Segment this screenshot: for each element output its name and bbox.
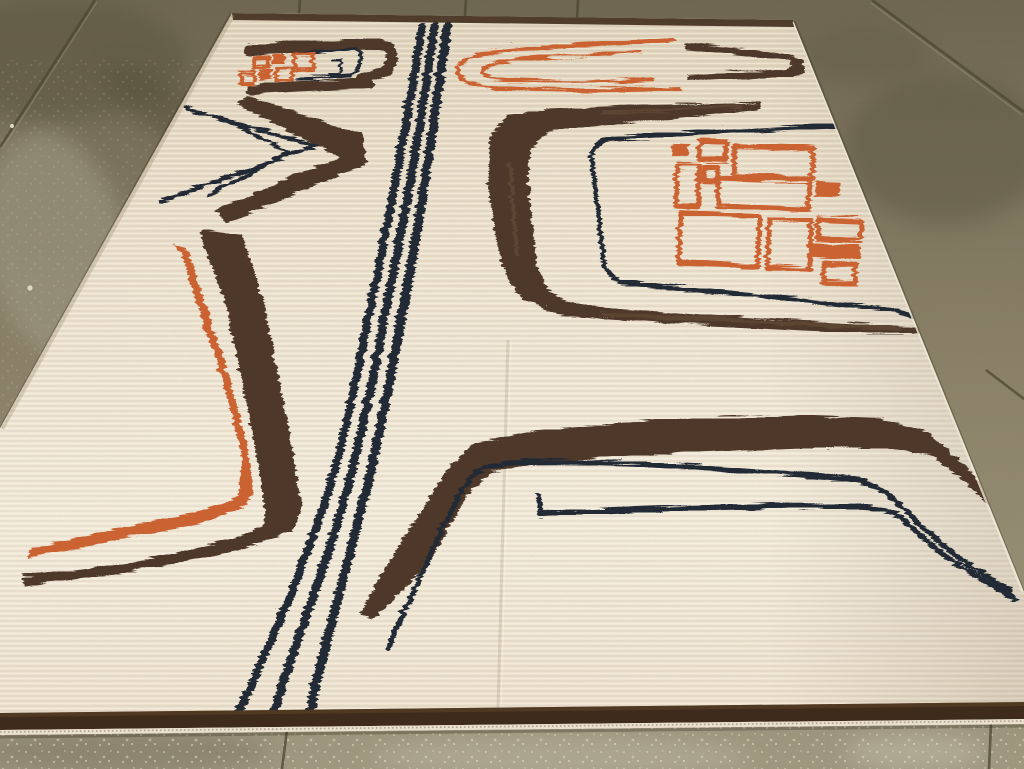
grout-line [299, 0, 300, 13]
orange-grid-cell [271, 53, 284, 63]
grout-line [577, 0, 578, 19]
orange-grid-cell [257, 68, 270, 78]
orange-grid-cell [670, 141, 688, 154]
rug-photograph [0, 0, 1024, 769]
photo-stage: Perspective photograph of a large cream … [0, 0, 1024, 769]
orange-grid-cell [810, 241, 858, 257]
orange-grid-cell [813, 179, 838, 195]
grout-line [465, 0, 466, 16]
